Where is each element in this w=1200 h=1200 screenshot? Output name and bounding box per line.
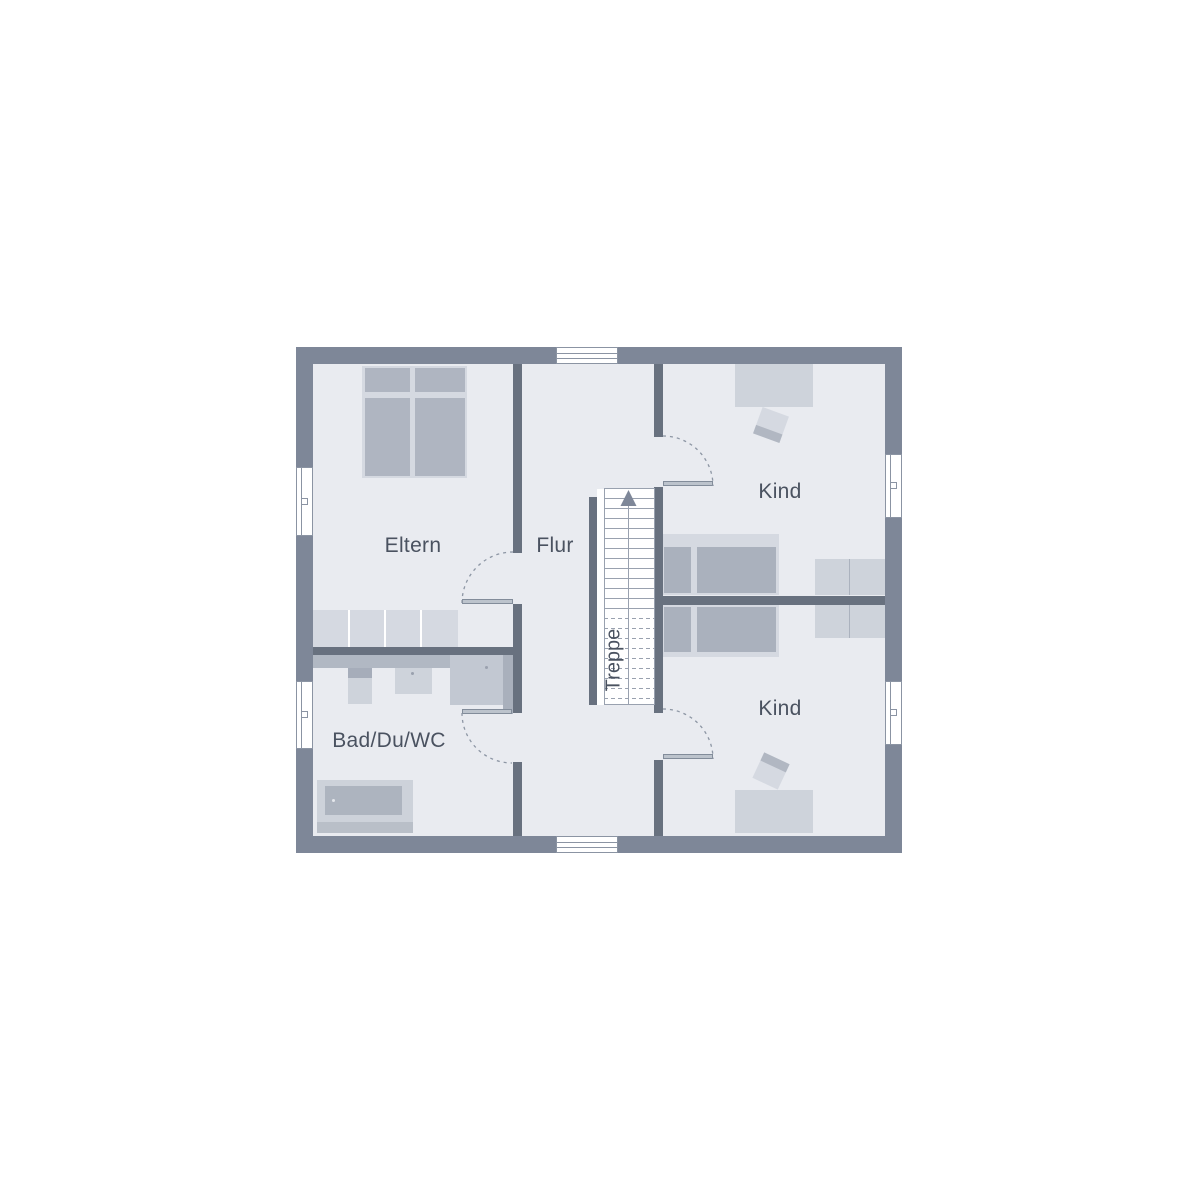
washbasin [348,668,372,678]
bed-pillow [365,368,410,392]
dresser [815,604,885,638]
desk [735,364,813,407]
stair-side-wall [589,497,597,705]
shower-wall-strip [503,654,513,714]
bed-pillow [664,607,691,652]
wall [513,762,522,836]
bed-mattress [365,398,410,476]
wall [654,760,663,836]
bed-mattress [415,398,465,476]
double-bed [362,366,467,478]
window-top [556,347,618,364]
door-child-top [663,481,713,486]
wc-flush-dot [411,672,414,675]
dresser-divider [849,604,850,638]
shower [450,654,503,705]
bathtub [317,780,413,833]
wall [513,364,522,553]
dresser [815,559,885,595]
wall [654,364,663,437]
bed-pillow [415,368,465,392]
wall [654,596,885,605]
room-label-bath: Bad/Du/WC [332,729,446,753]
bed-mattress [697,607,776,652]
washbasin-pedestal [348,678,372,704]
wardrobe-divider [420,610,422,647]
room-label-hall: Flur [536,534,573,558]
bathtub-basin [325,786,402,815]
desk [735,790,813,833]
dresser-divider [849,559,850,595]
room-label-child-top: Kind [758,480,801,504]
window-bath [296,681,313,749]
window-child-top [885,454,902,518]
wardrobe-divider [348,610,350,647]
wardrobe-divider [384,610,386,647]
window-bottom [556,836,618,853]
window-child-bottom [885,681,902,745]
bed-pillow [664,547,691,593]
door-bath [462,709,512,714]
room-label-parents: Eltern [385,534,442,558]
child-bed [658,534,779,595]
wardrobe [313,610,458,647]
window-parents [296,467,313,536]
bathtub-rim [317,822,413,833]
bed-mattress [697,547,776,593]
bathtub-drain-dot [332,799,335,802]
wall [513,604,522,713]
door-child-bottom [663,754,713,759]
room-label-child-bottom: Kind [758,697,801,721]
door-parents [462,599,513,604]
floor-plan: Eltern Flur Kind Kind Bad/Du/WC Treppe [0,0,1200,1200]
child-bed [658,604,779,657]
shower-head-dot [485,666,488,669]
wall [313,647,522,655]
stairs-label: Treppe [603,629,626,692]
